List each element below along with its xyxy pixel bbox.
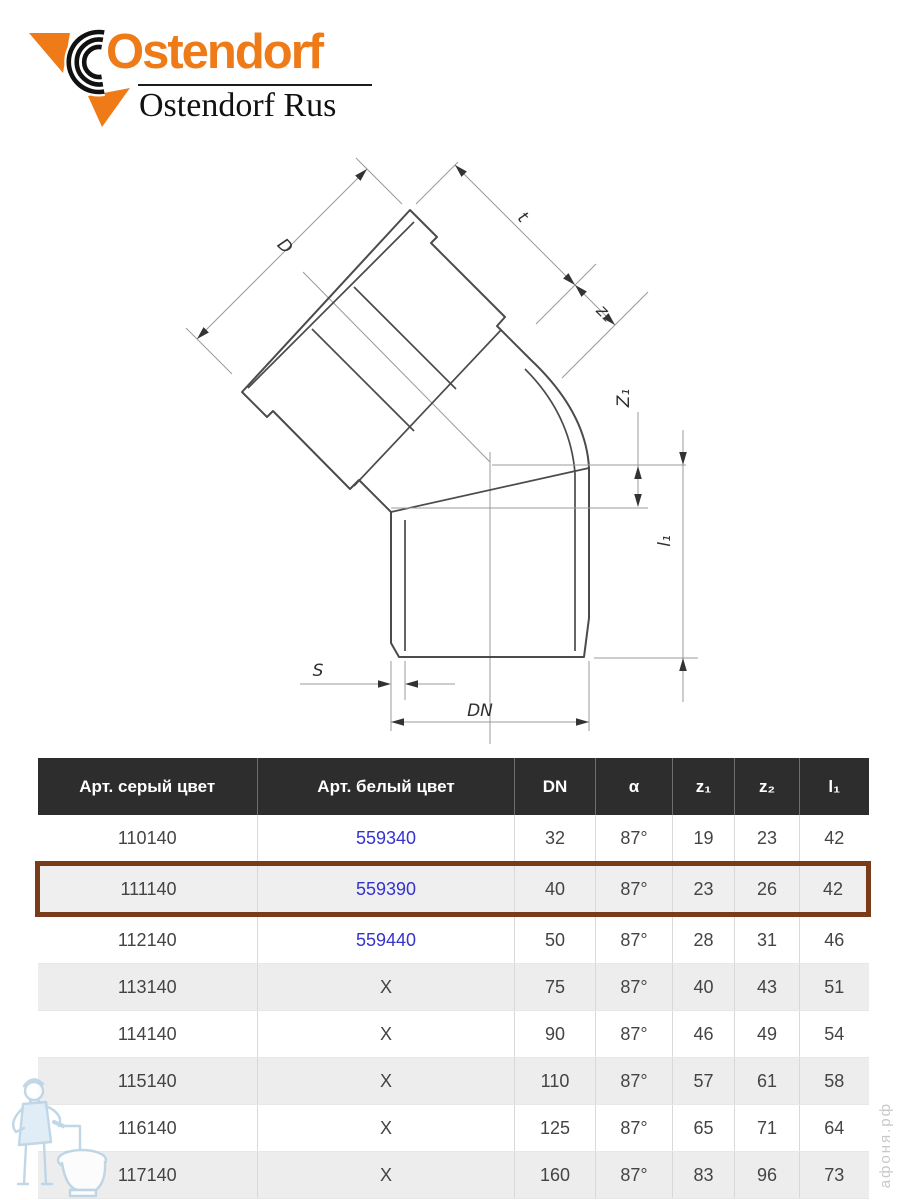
table-row: 110140 559340 32 87° 19 23 42 <box>38 815 869 864</box>
cell-z2: 26 <box>735 864 800 915</box>
cell-art-grey: 111140 <box>38 864 258 915</box>
dimension-label-d: D <box>273 235 296 258</box>
brand-subtitle: Ostendorf Rus <box>139 87 336 125</box>
table-row: 115140 X 110 87° 57 61 58 <box>38 1058 869 1105</box>
table-row: 116140 X 125 87° 65 71 64 <box>38 1105 869 1152</box>
cell-dn: 40 <box>515 864 596 915</box>
cell-art-white: 559340 <box>258 815 515 864</box>
cell-art-grey: 114140 <box>38 1011 258 1058</box>
dimension-label-dn: DN <box>467 701 493 721</box>
cell-alpha: 87° <box>596 1058 673 1105</box>
brand-title: Ostendorf <box>106 24 322 80</box>
table-header-row: Арт. серый цвет Арт. белый цвет DN α z₁ … <box>38 758 869 815</box>
cell-art-grey: 113140 <box>38 964 258 1011</box>
cell-l1: 51 <box>800 964 869 1011</box>
dimension-label-z1: Z₁ <box>614 389 634 408</box>
cell-z1: 46 <box>673 1011 735 1058</box>
column-header-z1: z₁ <box>673 758 735 815</box>
brand-divider <box>138 84 372 86</box>
cell-z1: 83 <box>673 1152 735 1199</box>
cell-z2: 71 <box>735 1105 800 1152</box>
article-link[interactable]: 559340 <box>356 828 416 848</box>
cell-z2: 43 <box>735 964 800 1011</box>
cell-z2: 49 <box>735 1011 800 1058</box>
cell-art-grey: 110140 <box>38 815 258 864</box>
table-row: 117140 X 160 87° 83 96 73 <box>38 1152 869 1199</box>
cell-z1: 57 <box>673 1058 735 1105</box>
column-header-art-grey: Арт. серый цвет <box>38 758 258 815</box>
cell-alpha: 87° <box>596 1011 673 1058</box>
cell-art-white: X <box>258 1152 515 1199</box>
cell-l1: 46 <box>800 915 869 964</box>
cell-dn: 160 <box>515 1152 596 1199</box>
cell-art-white: X <box>258 1105 515 1152</box>
cell-z1: 28 <box>673 915 735 964</box>
highlighted-row: 111140 559390 40 87° 23 26 42 <box>38 864 869 915</box>
cell-z2: 61 <box>735 1058 800 1105</box>
cell-dn: 32 <box>515 815 596 864</box>
cell-alpha: 87° <box>596 1105 673 1152</box>
cell-alpha: 87° <box>596 815 673 864</box>
cell-alpha: 87° <box>596 864 673 915</box>
cell-z1: 40 <box>673 964 735 1011</box>
cell-alpha: 87° <box>596 1152 673 1199</box>
column-header-l1: l₁ <box>800 758 869 815</box>
cell-z1: 19 <box>673 815 735 864</box>
table-row: 112140 559440 50 87° 28 31 46 <box>38 915 869 964</box>
column-header-alpha: α <box>596 758 673 815</box>
cell-l1: 73 <box>800 1152 869 1199</box>
cell-art-white: X <box>258 964 515 1011</box>
cell-dn: 125 <box>515 1105 596 1152</box>
cell-l1: 58 <box>800 1058 869 1105</box>
column-header-art-white: Арт. белый цвет <box>258 758 515 815</box>
table-row: 113140 X 75 87° 40 43 51 <box>38 964 869 1011</box>
cell-art-white: 559390 <box>258 864 515 915</box>
cell-dn: 50 <box>515 915 596 964</box>
cell-z1: 23 <box>673 864 735 915</box>
cell-z2: 96 <box>735 1152 800 1199</box>
specs-table: Арт. серый цвет Арт. белый цвет DN α z₁ … <box>35 758 871 1199</box>
cell-l1: 54 <box>800 1011 869 1058</box>
cell-z2: 31 <box>735 915 800 964</box>
plumber-watermark-icon <box>4 1070 116 1200</box>
cell-art-white: X <box>258 1058 515 1105</box>
cell-l1: 42 <box>800 815 869 864</box>
cell-art-grey: 112140 <box>38 915 258 964</box>
cell-art-white: 559440 <box>258 915 515 964</box>
cell-art-white: X <box>258 1011 515 1058</box>
cell-dn: 110 <box>515 1058 596 1105</box>
article-link[interactable]: 559440 <box>356 930 416 950</box>
logo: Ostendorf Ostendorf Rus <box>0 0 420 140</box>
cell-alpha: 87° <box>596 964 673 1011</box>
cell-l1: 42 <box>800 864 869 915</box>
cell-alpha: 87° <box>596 915 673 964</box>
cell-dn: 90 <box>515 1011 596 1058</box>
cell-z2: 23 <box>735 815 800 864</box>
dimension-label-l1: l₁ <box>655 535 675 547</box>
cell-z1: 65 <box>673 1105 735 1152</box>
technical-drawing: D t z₂ Z₁ l₁ S DN <box>0 140 900 758</box>
article-link[interactable]: 559390 <box>356 879 416 899</box>
cell-l1: 64 <box>800 1105 869 1152</box>
column-header-dn: DN <box>515 758 596 815</box>
site-watermark: афоня.рф <box>877 1102 894 1188</box>
table-row: 114140 X 90 87° 46 49 54 <box>38 1011 869 1058</box>
dimension-label-t: t <box>513 208 533 228</box>
cell-dn: 75 <box>515 964 596 1011</box>
dimension-label-s: S <box>313 661 324 681</box>
column-header-z2: z₂ <box>735 758 800 815</box>
